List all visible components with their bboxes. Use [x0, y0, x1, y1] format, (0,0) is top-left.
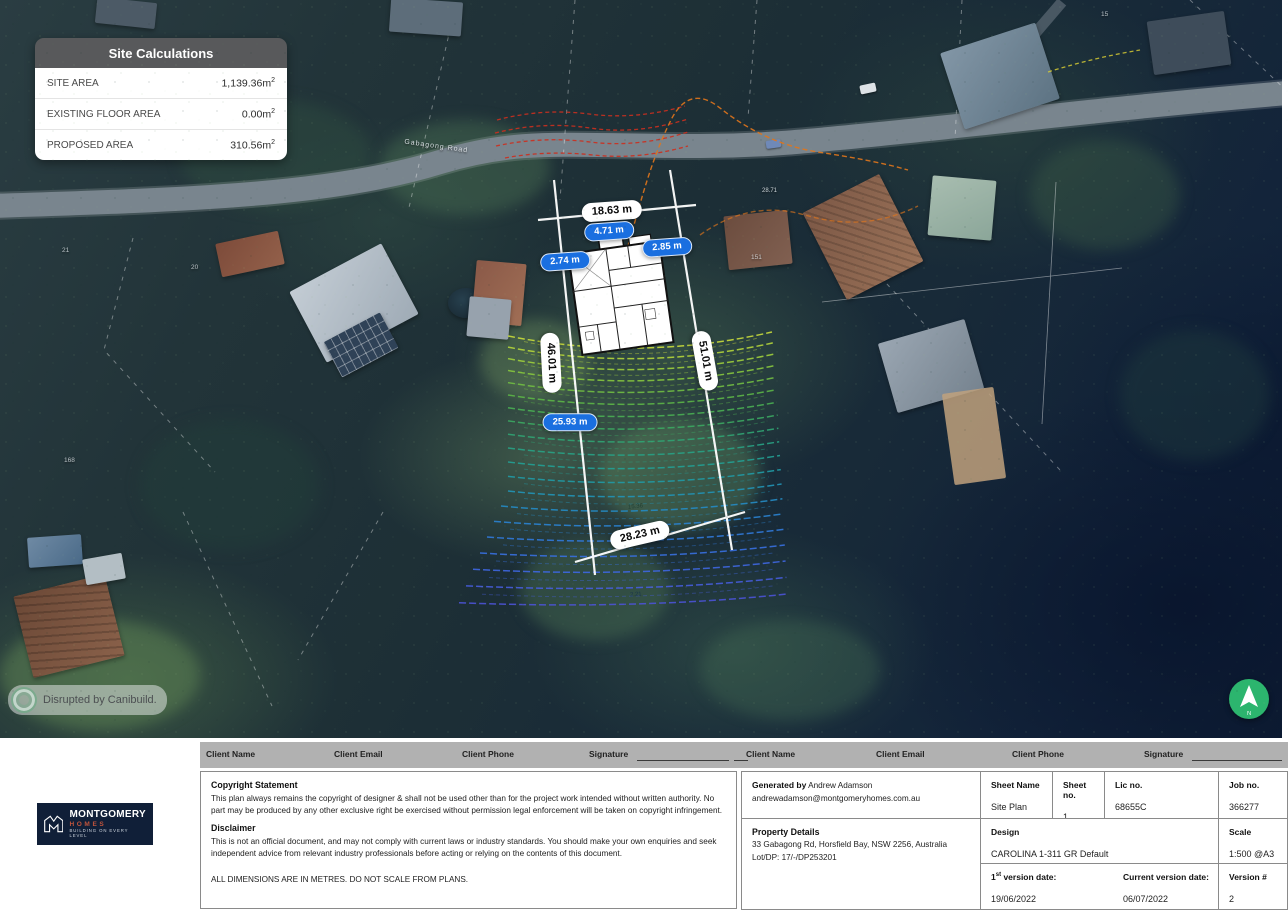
signature-line	[1192, 760, 1282, 761]
site-calculations-panel: Site Calculations SITE AREA 1,139.36m2 E…	[35, 38, 287, 160]
design-value: CAROLINA 1-311 GR Default	[991, 849, 1208, 859]
generated-by-email: andrewadamson@montgomeryhomes.com.au	[752, 794, 970, 803]
first-version-value: 19/06/2022	[991, 894, 1056, 904]
north-arrow: N	[1227, 677, 1271, 721]
canibuild-logo-icon	[11, 687, 37, 713]
house-roof	[95, 0, 157, 29]
setback-pill: 4.71 m	[584, 221, 635, 242]
client-name-label: Client Name	[206, 749, 255, 759]
disclaimer-body: This is not an official document, and ma…	[211, 836, 726, 861]
first-version-label: 1st version date:	[991, 872, 1056, 882]
setback-pill: 25.93 m	[543, 413, 598, 431]
signature-label: Signature	[1144, 749, 1183, 759]
house-roof-brown	[13, 574, 125, 678]
calc-row: SITE AREA 1,139.36m2	[35, 68, 287, 98]
tree-canopy	[700, 620, 880, 720]
calc-row: EXISTING FLOOR AREA 0.00m2	[35, 98, 287, 129]
signature-line	[637, 760, 729, 761]
generated-by-name: Andrew Adamson	[808, 781, 872, 790]
car	[766, 139, 782, 149]
driveway	[942, 387, 1006, 485]
lot-number: 15	[1101, 11, 1108, 18]
logo-tagline: BUILDING ON EVERY LEVEL	[69, 829, 146, 839]
lot-number: 20	[191, 264, 198, 271]
tree-canopy	[380, 120, 550, 215]
client-phone-label: Client Phone	[1012, 749, 1064, 759]
house-roof-tile	[802, 174, 923, 300]
dimension-pill: 46.01 m	[540, 332, 562, 393]
dimension-pill: 51.01 m	[690, 330, 719, 393]
calc-value: 1,139.36m2	[221, 77, 275, 90]
house-roof	[940, 23, 1060, 130]
calc-label: EXISTING FLOOR AREA	[47, 109, 160, 120]
sheet-name-cell: Sheet Name Site Plan	[980, 771, 1053, 819]
client-email-label: Client Email	[876, 749, 925, 759]
disclaimer-title: Disclaimer	[211, 823, 726, 833]
page-margin	[1282, 0, 1288, 738]
property-details-title: Property Details	[752, 827, 970, 837]
signature-line	[734, 760, 748, 761]
dimensions-note: ALL DIMENSIONS ARE IN METRES. DO NOT SCA…	[211, 874, 726, 886]
panel-body: SITE AREA 1,139.36m2 EXISTING FLOOR AREA…	[35, 68, 287, 160]
logo-name: MONTGOMERY	[69, 809, 146, 821]
house-roof	[723, 210, 792, 270]
aerial-map: Gabagong Road 21 20 151 15 168 15.36 2.2…	[0, 0, 1288, 738]
setback-pill: 2.74 m	[540, 251, 591, 272]
scale-value: 1:500 @A3	[1229, 849, 1277, 859]
tree-canopy	[140, 420, 320, 550]
calc-row: PROPOSED AREA 310.56m2	[35, 129, 287, 160]
client-phone-label: Client Phone	[462, 749, 514, 759]
logo-homes: HOMES	[69, 821, 146, 828]
property-address: 33 Gabagong Rd, Horsfield Bay, NSW 2256,…	[752, 840, 970, 849]
setback-pill: 2.85 m	[642, 237, 693, 258]
north-letter: N	[1247, 711, 1251, 717]
contour-elevation-label: 2.21	[630, 592, 642, 599]
lot-number: 21	[62, 247, 69, 254]
canibuild-watermark: Disrupted by Canibuild.	[8, 685, 167, 715]
client-name-label: Client Name	[746, 749, 795, 759]
calc-value: 0.00m2	[242, 108, 275, 121]
site-plan-sheet: Gabagong Road 21 20 151 15 168 15.36 2.2…	[0, 0, 1288, 911]
contour-elevation-label: 28.71	[762, 188, 777, 194]
lot-number: 168	[64, 457, 75, 464]
calc-label: PROPOSED AREA	[47, 140, 133, 151]
job-no-value: 366277	[1229, 802, 1277, 812]
contour-elevation-label: 15.36	[628, 503, 643, 510]
tree-canopy	[1030, 140, 1180, 250]
dimension-pill: 28.23 m	[608, 519, 671, 551]
lic-no-cell: Lic no. 68655C	[1104, 771, 1219, 819]
car	[859, 82, 877, 94]
shed-roof-blue	[27, 534, 83, 568]
generated-by-box: Generated by Andrew Adamson andrewadamso…	[741, 771, 981, 819]
legal-box: Copyright Statement This plan always rem…	[200, 771, 737, 909]
house-roof-red	[215, 231, 285, 278]
montgomery-homes-logo: MONTGOMERY HOMES BUILDING ON EVERY LEVEL	[37, 803, 153, 845]
copyright-title: Copyright Statement	[211, 780, 726, 790]
lic-no-value: 68655C	[1115, 802, 1208, 812]
contours-red	[495, 106, 688, 158]
house-roof	[466, 296, 511, 340]
shed-roof	[82, 553, 126, 586]
street-label: Gabagong Road	[404, 139, 469, 155]
client-email-label: Client Email	[334, 749, 383, 759]
house-roof	[389, 0, 463, 36]
tree-canopy	[600, 420, 760, 530]
signature-label: Signature	[589, 749, 628, 759]
dimension-pill: 18.63 m	[581, 199, 643, 222]
tree-canopy	[1120, 330, 1270, 460]
calc-label: SITE AREA	[47, 78, 99, 89]
sheet-no-cell: Sheet no. 1	[1052, 771, 1105, 819]
version-dates-cell: 1st version date: 19/06/2022 Current ver…	[980, 863, 1219, 910]
calc-value: 310.56m2	[230, 139, 275, 152]
generated-by-label: Generated by	[752, 780, 806, 790]
north-arrow-icon: N	[1227, 677, 1271, 721]
montgomery-m-icon	[44, 812, 63, 836]
watermark-text: Disrupted by Canibuild.	[43, 694, 157, 706]
current-version-value: 06/07/2022	[1123, 894, 1209, 904]
design-cell: Design CAROLINA 1-311 GR Default	[980, 818, 1219, 864]
house-roof	[1147, 11, 1232, 75]
tree-canopy	[520, 540, 670, 640]
property-details-box: Property Details 33 Gabagong Rd, Horsfie…	[741, 818, 981, 910]
house-roof-green	[928, 175, 997, 240]
panel-title: Site Calculations	[35, 38, 287, 68]
copyright-body: This plan always remains the copyright o…	[211, 793, 726, 818]
version-number-cell: Version # 2	[1218, 863, 1288, 910]
current-version-label: Current version date:	[1123, 872, 1209, 882]
contour-fan	[459, 332, 787, 605]
property-lot-dp: Lot/DP: 17/-/DP253201	[752, 853, 970, 862]
client-header-bar: Client Name Client Email Client Phone Si…	[200, 742, 1288, 768]
job-no-cell: Job no. 366277	[1218, 771, 1288, 819]
version-number-value: 2	[1229, 894, 1277, 904]
scale-cell: Scale 1:500 @A3	[1218, 818, 1288, 864]
contour-yellow	[1048, 50, 1140, 72]
sheet-name-value: Site Plan	[991, 802, 1042, 812]
